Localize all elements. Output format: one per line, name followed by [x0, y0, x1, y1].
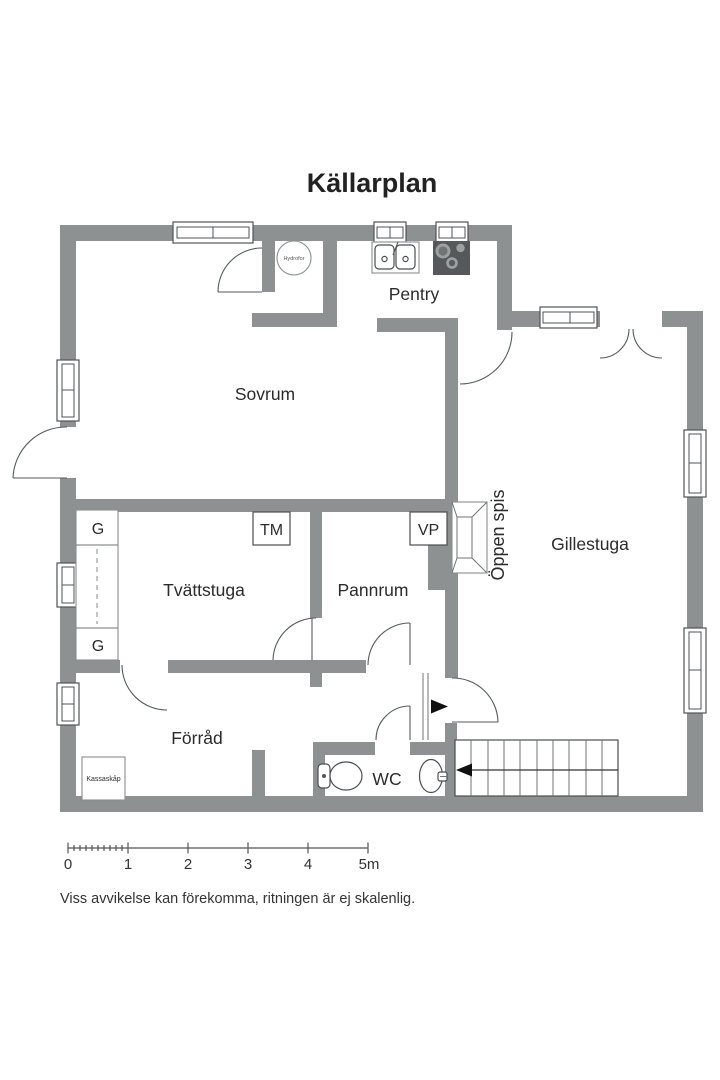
door-swing-arc	[460, 332, 512, 384]
label-g-bottom: G	[92, 638, 104, 655]
door-double-gillestuga	[600, 329, 662, 358]
staircase	[455, 740, 618, 796]
plan-title: Källarplan	[307, 168, 438, 198]
window-frame	[540, 307, 597, 328]
kitchen-sink-icon	[372, 242, 419, 273]
wc-sink-icon	[420, 760, 448, 793]
door-swing-arc-left	[600, 329, 629, 358]
wall-bottom	[60, 796, 703, 812]
door-tvattstuga	[273, 618, 316, 660]
wall-hydrofor-bottom	[252, 313, 337, 327]
stove-burner-large-inner	[438, 246, 447, 255]
floor-plan-page: Källarplan Sovrum Pentry Gillestuga Tvät…	[0, 0, 720, 1080]
door-pannrum	[368, 623, 410, 665]
door-swing-arc	[368, 623, 410, 665]
scale-label-2: 2	[184, 856, 192, 873]
label-vp: VP	[418, 522, 439, 539]
window-sovrum-left	[57, 360, 79, 421]
label-kassaskap: Kassaskåp	[86, 775, 120, 783]
room-label-forrad: Förråd	[171, 728, 223, 748]
room-label-tvattstuga: Tvättstuga	[163, 580, 245, 600]
room-label-wc: WC	[372, 769, 401, 789]
scale-label-1: 1	[124, 856, 132, 873]
door-swing-arc	[376, 706, 410, 740]
toilet-icon	[318, 762, 362, 790]
door-wc	[376, 706, 410, 740]
sink-drain-right	[403, 256, 408, 261]
scale-label-3: 3	[244, 856, 252, 873]
label-tm: TM	[260, 522, 283, 539]
room-label-gillestuga: Gillestuga	[551, 534, 629, 554]
label-g-top: G	[92, 521, 104, 538]
stove-burner-medium-inner	[449, 260, 455, 266]
wall-sovrum-right	[445, 318, 458, 512]
window-gillestuga-top	[540, 307, 597, 328]
window-pentry-2	[436, 222, 468, 243]
window-pentry-1	[374, 222, 406, 243]
door-hydrofor	[218, 248, 262, 292]
room-label-sovrum: Sovrum	[235, 384, 295, 404]
disclaimer-text: Viss avvikelse kan förekomma, ritningen …	[60, 891, 415, 907]
scale-label-5m: 5m	[359, 856, 380, 873]
wall-lower-horizontal	[76, 660, 366, 673]
wall-right	[687, 311, 703, 812]
wall-vp-jog	[428, 545, 445, 590]
window-forrad-left	[57, 683, 79, 725]
door-swing-arc	[218, 248, 262, 292]
label-oppen-spis: Öppen spis	[488, 489, 508, 580]
wall-forrad-stub	[252, 750, 265, 796]
toilet-bowl	[330, 762, 362, 790]
fireplace-icon	[452, 502, 487, 573]
wall-wc-top-right	[410, 742, 447, 755]
door-swing-arc	[273, 618, 316, 660]
window-gillestuga-right-1	[684, 430, 706, 497]
room-label-pentry: Pentry	[389, 284, 440, 304]
opening-stair-hall	[443, 678, 460, 723]
stove-burner-small	[456, 244, 464, 252]
wall-hydrofor-left-stub	[262, 241, 275, 292]
door-pentry-passage	[460, 332, 512, 384]
door-swing-arc-right	[633, 329, 662, 358]
window-top-sovrum	[173, 222, 253, 243]
opening-forrad	[120, 658, 168, 675]
wall-mid-horizontal	[60, 499, 458, 512]
sink-drain-left	[382, 256, 387, 261]
wall-tvatt-pannrum	[310, 512, 322, 618]
label-hydrofor: Hydrofor	[283, 256, 304, 262]
opening-double-door	[600, 309, 662, 329]
scale-label-4: 4	[304, 856, 312, 873]
floor-plan-drawing: Källarplan Sovrum Pentry Gillestuga Tvät…	[0, 0, 720, 1080]
toilet-button	[322, 774, 326, 778]
room-label-pannrum: Pannrum	[337, 580, 408, 600]
stove-icon	[433, 241, 470, 275]
scale-bar: 0 1 2 3 4 5m	[64, 843, 380, 874]
window-gillestuga-right-2	[684, 628, 706, 713]
scale-label-0: 0	[64, 856, 72, 873]
opening-entrance-left	[58, 427, 78, 478]
